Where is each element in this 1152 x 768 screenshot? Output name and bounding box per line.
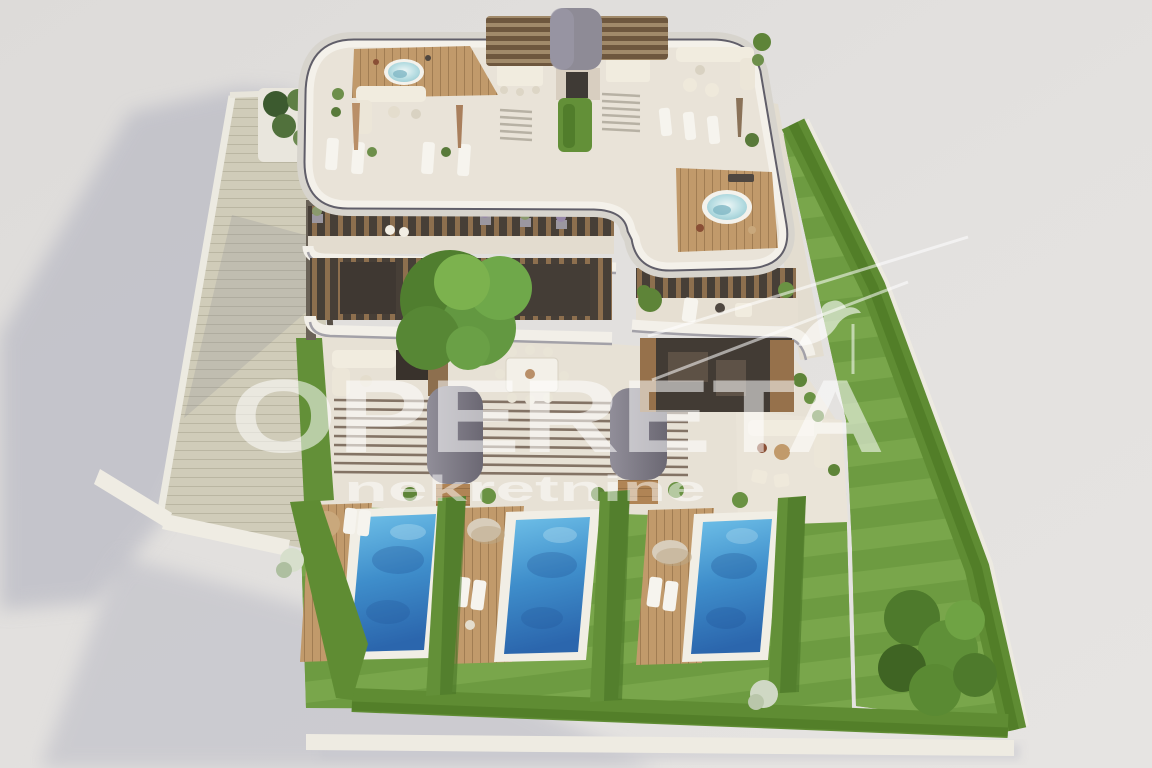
aerial-villa-render: OPERETA nekretnine [0, 0, 1152, 768]
pool-gardens [300, 503, 782, 665]
render-viewport: OPERETA nekretnine [0, 0, 1152, 768]
watermark-brand: OPERETA [230, 359, 885, 475]
garden-3 [636, 508, 782, 665]
watermark-subtitle: nekretnine [344, 468, 706, 509]
pergola-roof [486, 16, 556, 66]
wing-roof-deck [676, 168, 778, 252]
pergola-roof [598, 16, 668, 60]
garden-2 [446, 506, 600, 664]
elevator-core [550, 8, 602, 100]
step-bush [638, 288, 662, 312]
